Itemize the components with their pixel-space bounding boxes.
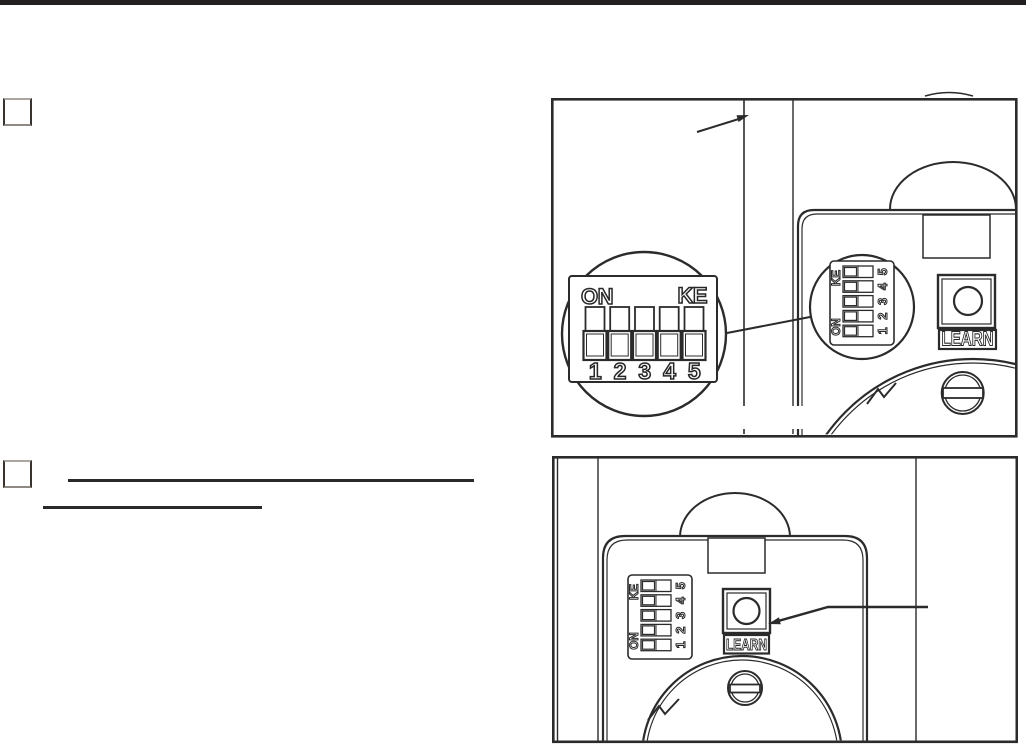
line-gap: [735, 406, 808, 429]
screw-2: [728, 671, 762, 705]
dip-small-number-4: 4: [876, 283, 890, 290]
dip-small2-number-4: 4: [674, 597, 688, 604]
receiver-dome: [890, 162, 1016, 209]
step-checkbox-1: [3, 98, 32, 126]
dip-small2-ke-label: KE: [629, 584, 641, 600]
learn-button-1: LEARN: [938, 275, 996, 351]
dip-small2-number-1: 1: [674, 641, 688, 648]
figure-door-frame-receiver: ON KE 1 2 3 4 5: [551, 88, 1018, 438]
screw-slot-2: [730, 685, 760, 693]
mount-notch-2: [708, 538, 765, 573]
dip-small-ke-label: KE: [831, 270, 843, 286]
dip-number-3: 3: [638, 358, 650, 384]
dip-switch-magnified: ON KE 1 2 3 4 5: [562, 252, 726, 416]
dip-small-number-2: 2: [876, 313, 890, 320]
dip-number-1: 1: [589, 358, 602, 384]
receiver-dome-2: [680, 493, 790, 537]
dip-number-4: 4: [663, 358, 676, 384]
manual-page: ON KE 1 2 3 4 5: [0, 0, 1026, 745]
figure-receiver-learn-button: KE ON 5 4 3 2 1 LEARN: [552, 456, 1018, 745]
dip-small-number-1: 1: [876, 327, 890, 334]
dip-number-5: 5: [688, 358, 701, 384]
step-checkbox-2: [3, 460, 32, 488]
dip-on-label: ON: [581, 284, 613, 309]
learn-label-2: LEARN: [726, 637, 767, 654]
blank-underline-1: [68, 479, 474, 482]
dip-number-2: 2: [614, 358, 626, 384]
dip-switch-small-2: KE ON 5 4 3 2 1: [628, 575, 692, 659]
dip-small2-number-3: 3: [674, 612, 688, 619]
top-rule: [0, 0, 1026, 5]
top-arc-remnant: [925, 93, 973, 97]
screw-1: [942, 372, 984, 414]
pointer-arrow-1: [697, 115, 749, 132]
dip-small2-number-2: 2: [674, 627, 688, 634]
dip-small-number-3: 3: [876, 298, 890, 305]
dip-small2-on-label: ON: [629, 632, 641, 649]
dip-small-number-5: 5: [876, 268, 890, 275]
screw-slot: [943, 388, 983, 398]
mount-notch: [923, 215, 990, 258]
dip-small2-number-5: 5: [674, 582, 688, 589]
dip-small-on-label: ON: [831, 318, 843, 335]
learn-button-dot-2: [734, 598, 760, 624]
learn-button-2: LEARN: [723, 589, 770, 654]
dip-switch-small-1: KE ON 5 4 3 2 1: [830, 261, 894, 345]
blank-underline-2: [43, 506, 262, 509]
learn-label-1: LEARN: [942, 329, 994, 351]
learn-button-dot: [954, 287, 982, 315]
dip-ke-label: KE: [677, 283, 707, 308]
